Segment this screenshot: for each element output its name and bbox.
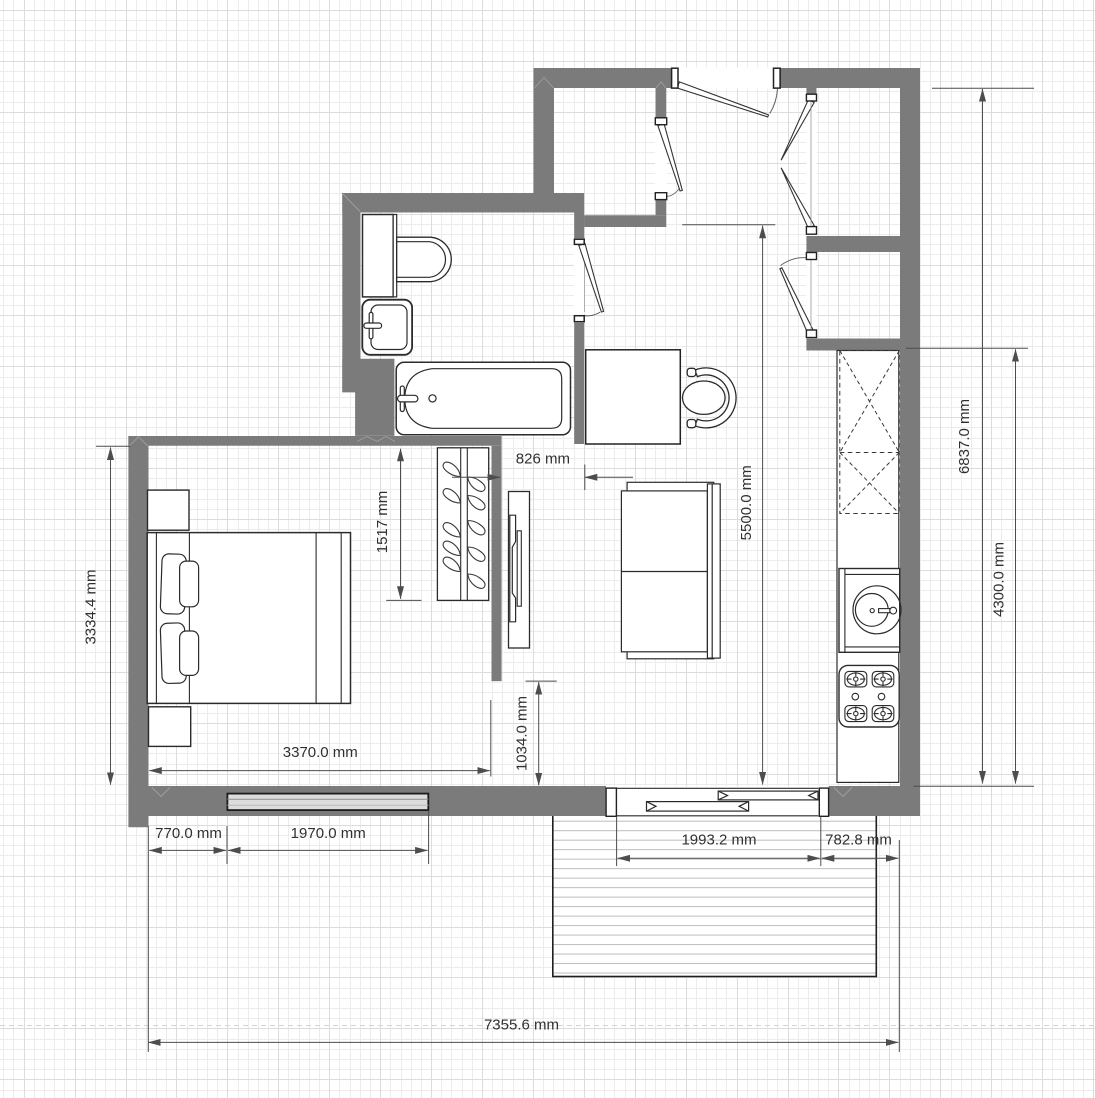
svg-text:770.0 mm: 770.0 mm (155, 825, 222, 842)
svg-text:3370.0 mm: 3370.0 mm (283, 744, 358, 761)
svg-text:4300.0 mm: 4300.0 mm (991, 542, 1008, 617)
svg-text:3334.4 mm: 3334.4 mm (82, 569, 99, 644)
svg-text:826 mm: 826 mm (516, 451, 570, 468)
svg-text:1970.0 mm: 1970.0 mm (291, 825, 366, 842)
svg-text:782.8 mm: 782.8 mm (825, 831, 892, 848)
svg-text:1034.0 mm: 1034.0 mm (514, 696, 531, 771)
svg-text:5500.0 mm: 5500.0 mm (738, 465, 755, 540)
svg-text:7355.6 mm: 7355.6 mm (484, 1016, 559, 1033)
svg-text:6837.0 mm: 6837.0 mm (956, 399, 973, 474)
svg-text:1517 mm: 1517 mm (374, 491, 391, 554)
svg-text:1993.2 mm: 1993.2 mm (681, 831, 756, 848)
